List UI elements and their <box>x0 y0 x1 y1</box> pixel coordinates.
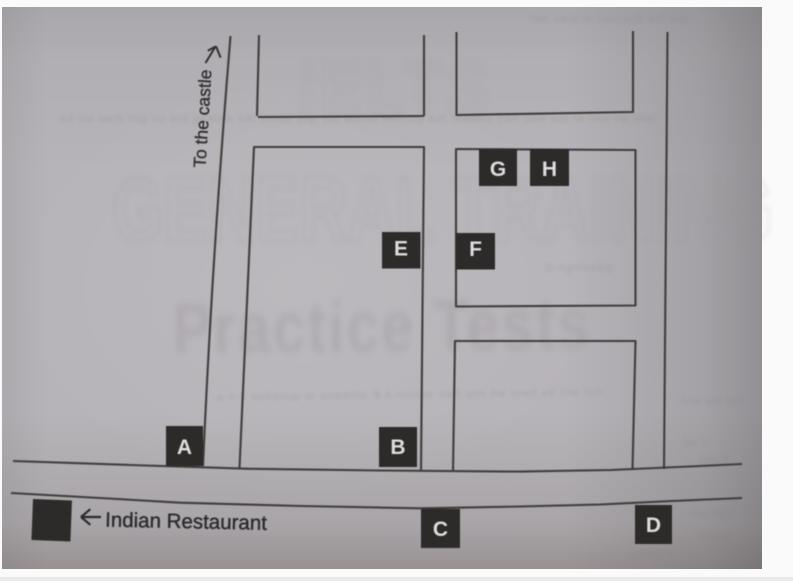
svg-text:F: F <box>469 238 482 261</box>
svg-text:Indian Restaurant: Indian Restaurant <box>105 509 268 535</box>
svg-text:B: B <box>390 436 405 459</box>
svg-text:C: C <box>433 518 448 541</box>
svg-text:A: A <box>177 436 192 459</box>
svg-text:H: H <box>542 158 557 181</box>
svg-text:G: G <box>490 158 506 181</box>
svg-text:E: E <box>394 238 408 261</box>
svg-text:D: D <box>646 514 661 537</box>
svg-text:To the castle: To the castle <box>190 69 216 168</box>
